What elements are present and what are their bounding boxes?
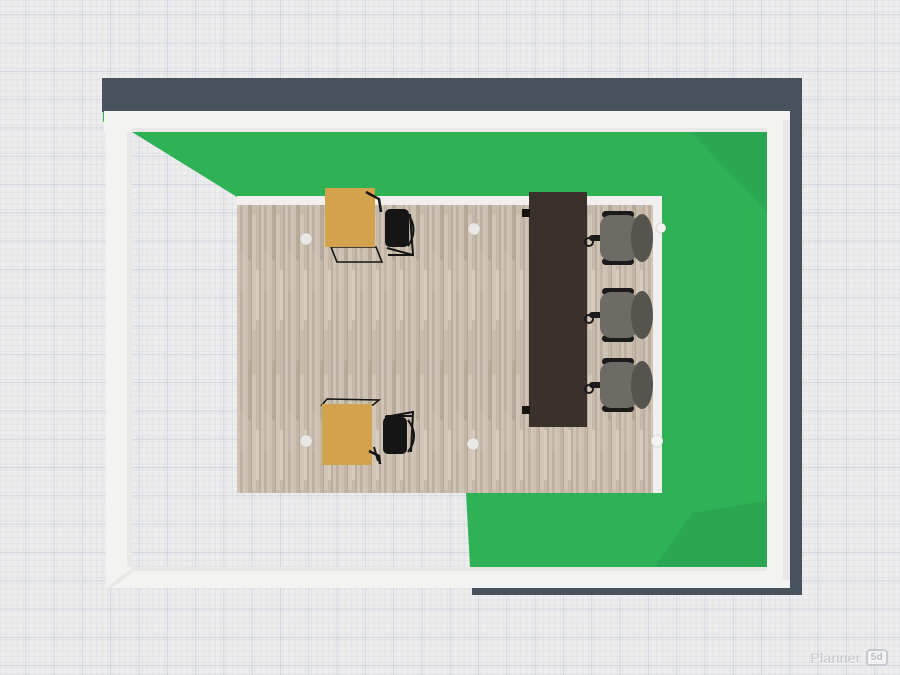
office-chair-3-backrest bbox=[631, 361, 653, 409]
table-surface[interactable] bbox=[529, 192, 587, 427]
office-chair-1-backrest bbox=[631, 214, 653, 262]
wall-knob-bottom bbox=[651, 435, 663, 447]
desk-top-surface[interactable] bbox=[325, 188, 375, 247]
wall-top-dark[interactable] bbox=[102, 78, 802, 112]
table-knob-1 bbox=[522, 209, 530, 217]
desk-bottom-surface[interactable] bbox=[322, 404, 372, 465]
office-chair-2-backrest bbox=[631, 291, 653, 339]
wall-right-dark[interactable] bbox=[790, 100, 802, 595]
wall-knob-top bbox=[656, 223, 666, 233]
chair-top-seat[interactable] bbox=[385, 209, 409, 247]
chair-bottom-seat[interactable] bbox=[383, 417, 407, 454]
watermark-brand-text: Planner bbox=[810, 650, 860, 666]
ceiling-light-1[interactable] bbox=[300, 233, 312, 245]
wood-floor[interactable] bbox=[237, 204, 653, 493]
scene-3d-render bbox=[0, 0, 900, 675]
table-knob-2 bbox=[522, 406, 530, 414]
wall-white-bottom-bevel bbox=[133, 567, 768, 571]
conference-table[interactable] bbox=[522, 192, 587, 427]
planner5d-watermark: Planner5d bbox=[810, 649, 888, 666]
planner-3d-viewport[interactable]: Planner5d bbox=[0, 0, 900, 675]
wall-white-left-bevel bbox=[127, 132, 132, 568]
baseboard-top bbox=[237, 196, 662, 205]
wall-white-top-bevel bbox=[132, 128, 768, 132]
ceiling-light-2[interactable] bbox=[468, 223, 480, 235]
ceiling-light-3[interactable] bbox=[300, 435, 312, 447]
watermark-5d-badge-icon: 5d bbox=[866, 649, 888, 666]
desk-bottom[interactable] bbox=[322, 399, 380, 465]
partition-wall-right[interactable] bbox=[653, 196, 662, 493]
ceiling-light-4[interactable] bbox=[467, 438, 479, 450]
wall-white-right-bevel bbox=[783, 120, 790, 580]
